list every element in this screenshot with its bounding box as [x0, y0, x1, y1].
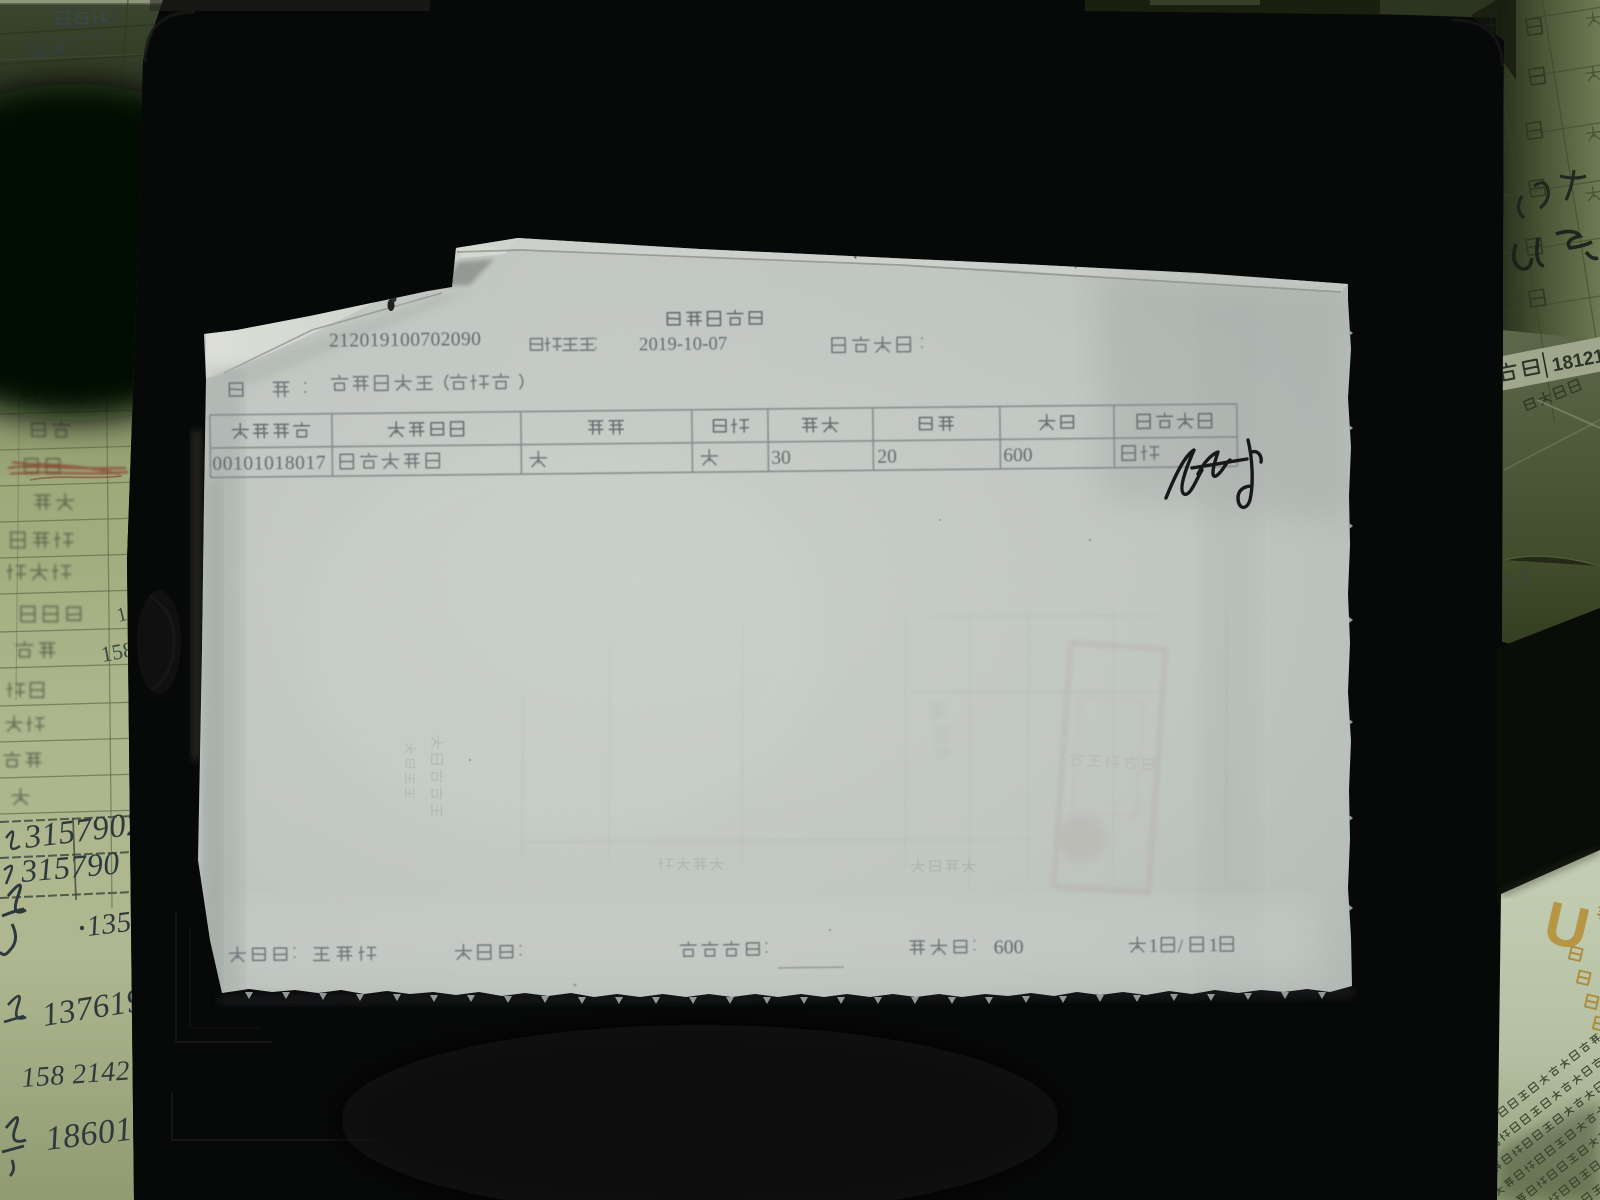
svg-text:1: 1: [1149, 936, 1159, 957]
svg-text:/: /: [1178, 935, 1184, 957]
svg-text:600: 600: [994, 936, 1024, 958]
svg-text:30: 30: [771, 448, 791, 469]
svg-text:1: 1: [1209, 935, 1219, 956]
svg-text:212019100702090: 212019100702090: [329, 329, 481, 352]
svg-text:135: 135: [85, 906, 134, 943]
svg-text:600: 600: [1003, 445, 1032, 466]
svg-text:2019-10-07: 2019-10-07: [639, 334, 728, 355]
svg-text:00101018017: 00101018017: [212, 453, 326, 475]
svg-text:20: 20: [877, 447, 897, 468]
